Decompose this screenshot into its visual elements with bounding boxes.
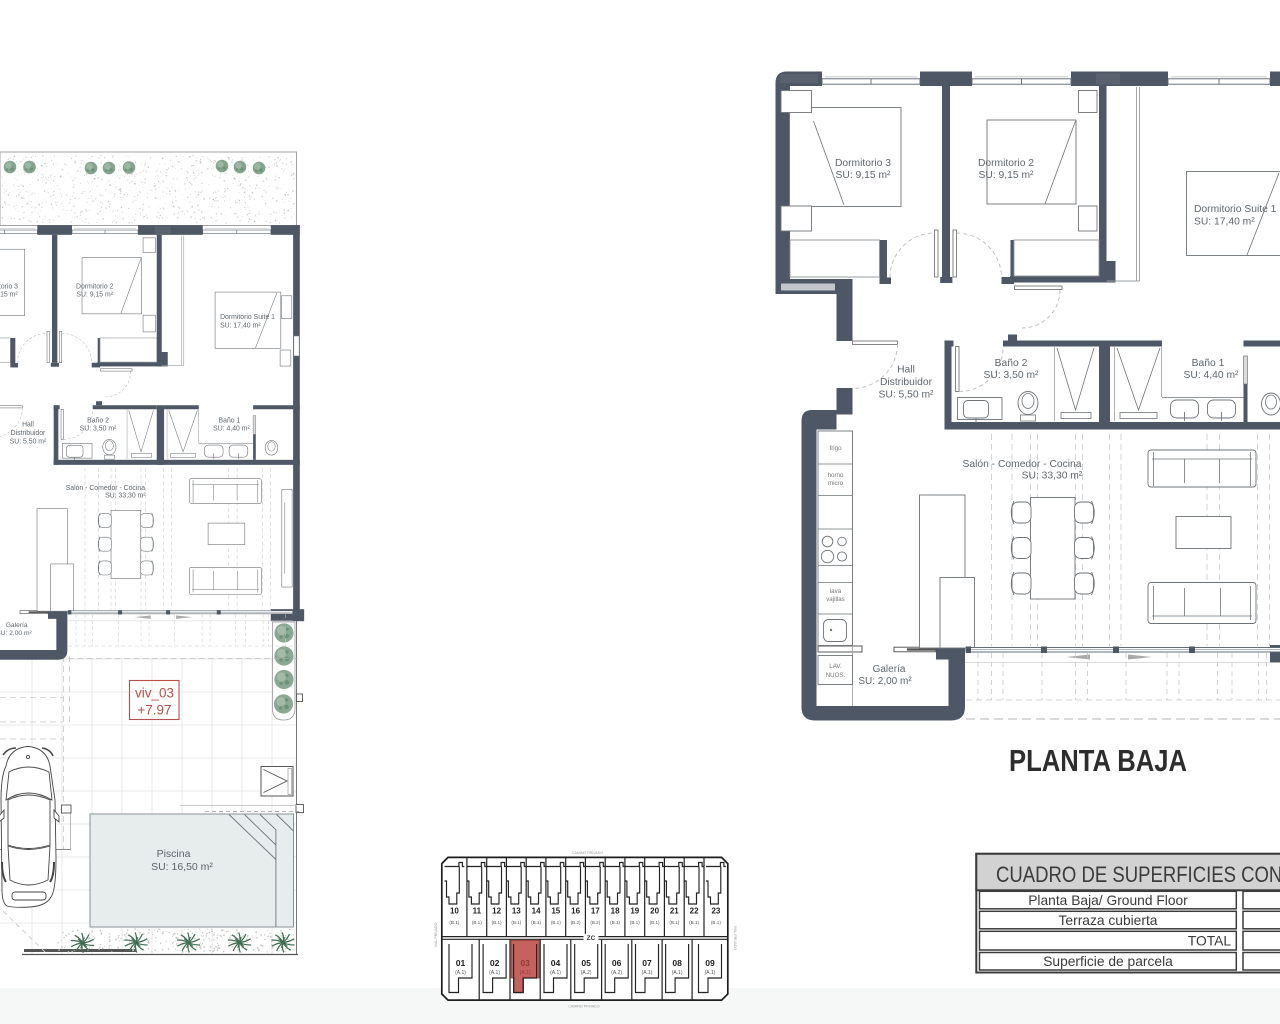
svg-text:TOTAL: TOTAL bbox=[1188, 933, 1232, 948]
svg-text:(B.1): (B.1) bbox=[511, 920, 521, 925]
svg-text:Piscina: Piscina bbox=[157, 848, 191, 860]
svg-text:(B.1): (B.1) bbox=[630, 920, 640, 925]
svg-text:21: 21 bbox=[670, 907, 679, 916]
svg-text:04: 04 bbox=[551, 958, 561, 968]
svg-text:(A.2): (A.2) bbox=[611, 970, 622, 976]
svg-text:08: 08 bbox=[672, 958, 682, 968]
svg-text:(A.1): (A.1) bbox=[642, 970, 653, 976]
svg-text:09: 09 bbox=[705, 958, 715, 968]
svg-text:(B.1): (B.1) bbox=[492, 920, 502, 925]
svg-text:02: 02 bbox=[490, 958, 500, 968]
svg-text:(A.1): (A.1) bbox=[672, 970, 683, 976]
svg-text:(B.2): (B.2) bbox=[590, 920, 600, 925]
svg-text:(B.1): (B.1) bbox=[610, 920, 620, 925]
svg-text:(A.1): (A.1) bbox=[489, 970, 500, 976]
svg-text:(B.1): (B.1) bbox=[689, 920, 699, 925]
svg-text:11: 11 bbox=[473, 907, 482, 916]
svg-text:14: 14 bbox=[532, 907, 541, 916]
svg-text:(B.1): (B.1) bbox=[711, 920, 721, 925]
svg-text:06: 06 bbox=[612, 958, 622, 968]
svg-text:VIAL PRIVADO: VIAL PRIVADO bbox=[733, 926, 737, 951]
svg-text:(B.1): (B.1) bbox=[551, 920, 561, 925]
svg-text:20: 20 bbox=[650, 907, 659, 916]
svg-text:Terraza cubierta: Terraza cubierta bbox=[1059, 913, 1158, 928]
svg-text:CAMINO PRIVADO: CAMINO PRIVADO bbox=[568, 1005, 599, 1009]
svg-text:17: 17 bbox=[591, 907, 600, 916]
svg-text:(A.1): (A.1) bbox=[550, 970, 561, 976]
svg-text:(A.1): (A.1) bbox=[520, 970, 531, 976]
svg-text:(A.1): (A.1) bbox=[455, 970, 466, 976]
svg-text:(B.1): (B.1) bbox=[472, 920, 482, 925]
svg-text:07: 07 bbox=[642, 958, 652, 968]
svg-text:+7.97: +7.97 bbox=[137, 703, 171, 718]
svg-text:(B.1): (B.1) bbox=[531, 920, 541, 925]
svg-text:16: 16 bbox=[571, 907, 580, 916]
svg-text:VIAL PRIVADO: VIAL PRIVADO bbox=[434, 923, 438, 948]
svg-text:13: 13 bbox=[512, 907, 521, 916]
svg-text:23: 23 bbox=[711, 907, 720, 916]
svg-text:CUADRO DE SUPERFICIES CONSTRUI: CUADRO DE SUPERFICIES CONSTRUIDAS bbox=[996, 862, 1280, 887]
svg-text:03: 03 bbox=[520, 958, 530, 968]
svg-text:(B.1): (B.1) bbox=[650, 920, 660, 925]
svg-text:Superficie de parcela: Superficie de parcela bbox=[1043, 954, 1173, 969]
svg-text:(A.1): (A.1) bbox=[705, 970, 716, 976]
svg-text:22: 22 bbox=[690, 907, 699, 916]
svg-text:PLANTA BAJA: PLANTA BAJA bbox=[1009, 743, 1187, 778]
svg-text:01: 01 bbox=[456, 958, 466, 968]
svg-text:(A.2): (A.2) bbox=[581, 970, 592, 976]
svg-text:15: 15 bbox=[551, 907, 560, 916]
svg-text:19: 19 bbox=[630, 907, 639, 916]
svg-text:viv_03: viv_03 bbox=[135, 686, 174, 701]
svg-text:12: 12 bbox=[492, 907, 501, 916]
svg-text:05: 05 bbox=[581, 958, 591, 968]
svg-text:10: 10 bbox=[450, 907, 459, 916]
svg-text:SU: 16,50 m²: SU: 16,50 m² bbox=[151, 861, 213, 873]
svg-text:18: 18 bbox=[611, 907, 620, 916]
svg-text:Planta Baja/ Ground Floor: Planta Baja/ Ground Floor bbox=[1028, 893, 1188, 908]
svg-text:(B.1): (B.1) bbox=[669, 920, 679, 925]
svg-text:CAMINO PRIVADO: CAMINO PRIVADO bbox=[572, 851, 603, 855]
svg-text:ZC: ZC bbox=[587, 935, 596, 942]
svg-text:(B.1): (B.1) bbox=[449, 920, 459, 925]
svg-text:(B.2): (B.2) bbox=[571, 920, 581, 925]
